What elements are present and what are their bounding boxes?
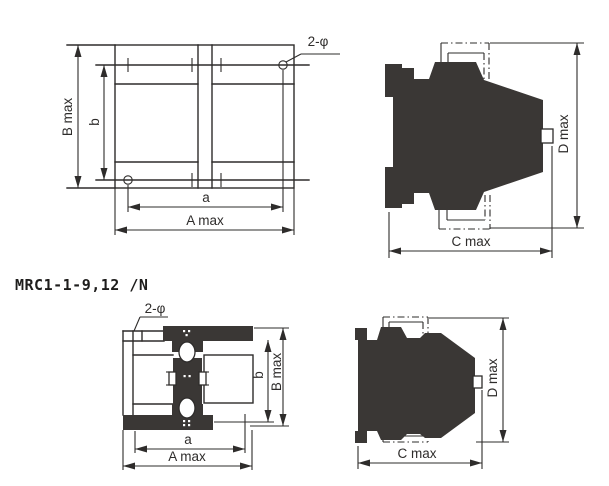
dim-a-front-top: a (128, 70, 283, 212)
hole-note-label: 2-φ (308, 34, 329, 49)
dimension-drawing-sheet: 2-φ B max b a A max (0, 0, 609, 486)
hole-note-label: 2-φ (145, 301, 166, 316)
dim-label-c-max: C max (451, 234, 490, 249)
side-bottom-silhouette (355, 327, 475, 443)
dim-label-b-max: B max (60, 98, 75, 137)
front-view-bottom: 2-φ b B max a A max (123, 301, 289, 470)
dim-b-max-front-top: B max (60, 45, 78, 188)
front-top-terminal-ticks (128, 58, 221, 187)
dim-label-d-max: D max (485, 358, 500, 397)
dim-label-b-max: B max (269, 353, 284, 392)
front-bottom-bottom-bar (123, 415, 213, 430)
hole-callout-front-bottom: 2-φ (134, 301, 168, 331)
dim-label-a: a (202, 190, 210, 205)
dim-label-a-max: A max (186, 213, 224, 228)
dim-label-d-max: D max (556, 114, 571, 153)
front-bottom-center-column (166, 340, 209, 418)
side-view-bottom: D max C max (355, 317, 509, 469)
dim-label-b: b (251, 371, 266, 379)
dim-label-c-max: C max (397, 446, 436, 461)
side-bottom-terminal-tab (473, 376, 482, 388)
front-view-top: 2-φ B max b a A max (60, 34, 340, 235)
dim-b-front-top: b (87, 65, 104, 180)
drawing-canvas: 2-φ B max b a A max (0, 0, 609, 486)
side-top-silhouette (385, 62, 543, 210)
dim-label-a-max: A max (168, 449, 206, 464)
front-bottom-top-bar (163, 326, 253, 341)
side-top-terminal-tab (541, 129, 553, 143)
dim-label-a: a (184, 432, 192, 447)
model-label: MRC1-1-9,12 /N (15, 276, 148, 294)
front-top-body-outline (67, 45, 309, 188)
dim-label-b: b (87, 118, 102, 126)
side-view-top: D max C max (385, 43, 584, 258)
